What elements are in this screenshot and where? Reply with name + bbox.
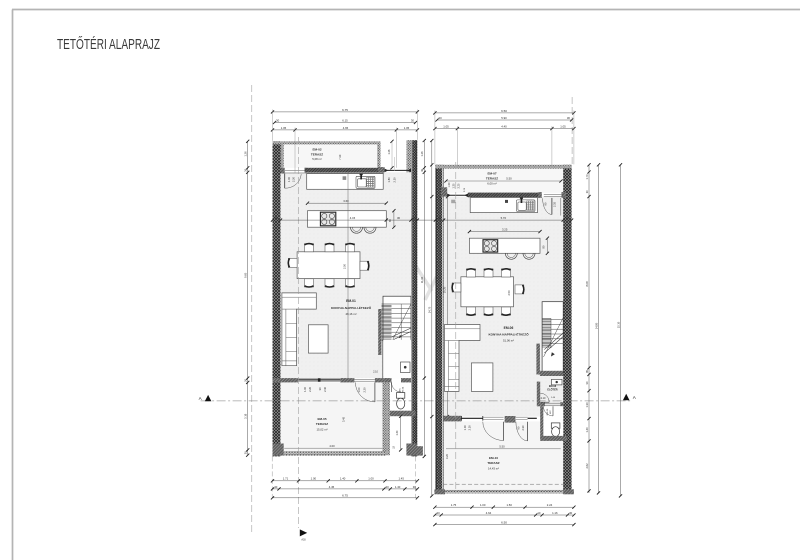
svg-text:TERASZ: TERASZ xyxy=(487,461,499,465)
svg-text:1.80: 1.80 xyxy=(387,177,391,183)
svg-text:1.00: 1.00 xyxy=(448,182,451,187)
svg-text:2.30: 2.30 xyxy=(521,425,525,431)
svg-text:2.10: 2.10 xyxy=(373,370,378,373)
svg-text:6.15: 6.15 xyxy=(342,118,348,122)
svg-text:2.24: 2.24 xyxy=(547,503,553,507)
svg-text:1.00: 1.00 xyxy=(287,176,291,182)
svg-text:1.30: 1.30 xyxy=(453,183,456,188)
svg-text:WC: WC xyxy=(550,410,552,414)
svg-text:15,02 m²: 15,02 m² xyxy=(316,427,327,431)
svg-text:4.15: 4.15 xyxy=(350,216,356,220)
svg-text:1.30: 1.30 xyxy=(396,430,399,435)
svg-text:11.30: 11.30 xyxy=(420,276,424,283)
svg-text:1.50: 1.50 xyxy=(506,503,512,507)
svg-text:1.05: 1.05 xyxy=(404,126,410,130)
svg-text:2.62: 2.62 xyxy=(585,463,589,469)
svg-text:1.05: 1.05 xyxy=(281,126,287,130)
svg-text:3.16: 3.16 xyxy=(244,413,248,419)
svg-text:1.45: 1.45 xyxy=(398,477,404,481)
svg-text:A03: A03 xyxy=(301,539,306,542)
svg-text:5.70: 5.70 xyxy=(501,216,507,220)
svg-text:3.20: 3.20 xyxy=(445,453,449,459)
svg-text:30: 30 xyxy=(413,485,417,489)
svg-text:TERASZ: TERASZ xyxy=(311,152,323,156)
svg-text:1.26: 1.26 xyxy=(420,151,424,157)
svg-text:1.05: 1.05 xyxy=(560,125,566,129)
svg-text:14.70: 14.70 xyxy=(428,306,432,313)
svg-text:1.00: 1.00 xyxy=(303,386,307,392)
svg-text:6.50: 6.50 xyxy=(501,521,507,525)
svg-text:2.50: 2.50 xyxy=(343,263,347,269)
svg-text:30: 30 xyxy=(276,118,280,122)
svg-text:30: 30 xyxy=(566,216,570,220)
svg-text:3.20: 3.20 xyxy=(458,183,461,188)
svg-text:30: 30 xyxy=(412,216,416,220)
svg-text:EM-04: EM-04 xyxy=(402,386,404,393)
svg-text:1.00: 1.00 xyxy=(368,477,374,481)
svg-text:4.65: 4.65 xyxy=(343,126,349,130)
svg-text:7.30: 7.30 xyxy=(338,154,342,160)
svg-text:4.64: 4.64 xyxy=(486,511,492,515)
svg-text:WC: WC xyxy=(399,388,401,392)
svg-text:51,06 m²: 51,06 m² xyxy=(503,338,514,342)
svg-text:6,00 m²: 6,00 m² xyxy=(487,182,497,186)
svg-text:EM-09: EM-09 xyxy=(547,408,549,415)
svg-text:30: 30 xyxy=(386,485,390,489)
svg-text:6.75: 6.75 xyxy=(342,108,348,112)
svg-text:6.75: 6.75 xyxy=(342,494,348,498)
svg-text:30: 30 xyxy=(567,116,571,120)
svg-text:3.45: 3.45 xyxy=(342,416,346,422)
svg-text:9.60: 9.60 xyxy=(244,272,248,278)
svg-text:30: 30 xyxy=(274,485,278,489)
svg-text:3.25: 3.25 xyxy=(502,228,508,232)
svg-text:1.00: 1.00 xyxy=(463,425,467,431)
svg-text:2.10: 2.10 xyxy=(541,397,546,400)
svg-text:4.45: 4.45 xyxy=(329,485,335,489)
svg-text:2.50: 2.50 xyxy=(507,290,511,296)
svg-text:4.40: 4.40 xyxy=(501,125,507,129)
svg-text:5,08 m²: 5,08 m² xyxy=(312,157,322,161)
svg-text:6.50: 6.50 xyxy=(501,109,507,113)
svg-text:1.16: 1.16 xyxy=(552,511,558,515)
svg-text:2.20: 2.20 xyxy=(292,176,296,182)
svg-text:1.00: 1.00 xyxy=(357,387,361,393)
svg-text:1.30: 1.30 xyxy=(585,402,589,408)
svg-text:2.20: 2.20 xyxy=(468,425,472,431)
svg-text:30: 30 xyxy=(438,216,442,220)
svg-text:ELŐTÉR: ELŐTÉR xyxy=(547,389,557,392)
svg-text:2.20: 2.20 xyxy=(308,386,312,392)
svg-text:49,16 m²: 49,16 m² xyxy=(345,312,356,316)
svg-text:1.40: 1.40 xyxy=(585,427,589,433)
svg-text:30: 30 xyxy=(275,216,279,220)
svg-text:2.30: 2.30 xyxy=(323,386,327,392)
svg-text:1.71: 1.71 xyxy=(283,477,289,481)
svg-text:1.05: 1.05 xyxy=(443,125,449,129)
svg-text:1.40: 1.40 xyxy=(340,477,346,481)
svg-text:EM-08: EM-08 xyxy=(549,385,557,388)
svg-text:1.00: 1.00 xyxy=(311,477,317,481)
svg-text:1.26: 1.26 xyxy=(244,151,248,157)
svg-text:10.20: 10.20 xyxy=(442,286,446,293)
svg-text:TERASZ: TERASZ xyxy=(316,422,328,426)
svg-text:EM-07: EM-07 xyxy=(487,172,496,176)
svg-text:15.10: 15.10 xyxy=(616,321,620,328)
svg-text:1.40: 1.40 xyxy=(395,485,401,489)
svg-text:EM-02: EM-02 xyxy=(312,148,321,152)
svg-text:5.50: 5.50 xyxy=(499,444,505,448)
svg-text:1.26: 1.26 xyxy=(388,149,391,154)
svg-text:30: 30 xyxy=(437,511,441,515)
svg-text:EM-01: EM-01 xyxy=(346,299,356,303)
svg-text:30: 30 xyxy=(411,118,415,122)
svg-text:TETŐTÉRI ALAPRAJZ: TETŐTÉRI ALAPRAJZ xyxy=(57,36,160,53)
svg-text:EM-10: EM-10 xyxy=(489,456,498,460)
svg-text:14.80: 14.80 xyxy=(594,322,598,329)
svg-text:2.20: 2.20 xyxy=(393,177,397,183)
svg-text:30: 30 xyxy=(569,511,573,515)
svg-text:8.08: 8.08 xyxy=(585,281,589,287)
svg-text:3.60: 3.60 xyxy=(343,199,349,203)
svg-text:10: 10 xyxy=(537,511,541,515)
svg-text:1.70: 1.70 xyxy=(585,174,589,180)
svg-text:EM-06: EM-06 xyxy=(504,326,514,330)
svg-text:30: 30 xyxy=(397,216,401,220)
svg-text:14,43 m²: 14,43 m² xyxy=(488,466,499,470)
svg-text:2.20: 2.20 xyxy=(363,387,367,393)
svg-text:5.50: 5.50 xyxy=(506,177,512,181)
svg-text:1.00: 1.00 xyxy=(480,503,486,507)
svg-text:2.35: 2.35 xyxy=(552,201,556,207)
svg-text:EM-05: EM-05 xyxy=(317,417,326,421)
svg-text:5.90: 5.90 xyxy=(501,116,507,120)
svg-text:TERASZ: TERASZ xyxy=(486,177,498,181)
svg-text:1.75: 1.75 xyxy=(451,503,457,507)
svg-text:4.00: 4.00 xyxy=(329,444,335,448)
svg-text:30: 30 xyxy=(439,116,443,120)
svg-text:KONYHA-NAPPALI-ÉTKEZŐ: KONYHA-NAPPALI-ÉTKEZŐ xyxy=(488,331,529,336)
svg-text:KONYHA-NAPPALI-ÉTKEZŐ: KONYHA-NAPPALI-ÉTKEZŐ xyxy=(331,305,372,310)
